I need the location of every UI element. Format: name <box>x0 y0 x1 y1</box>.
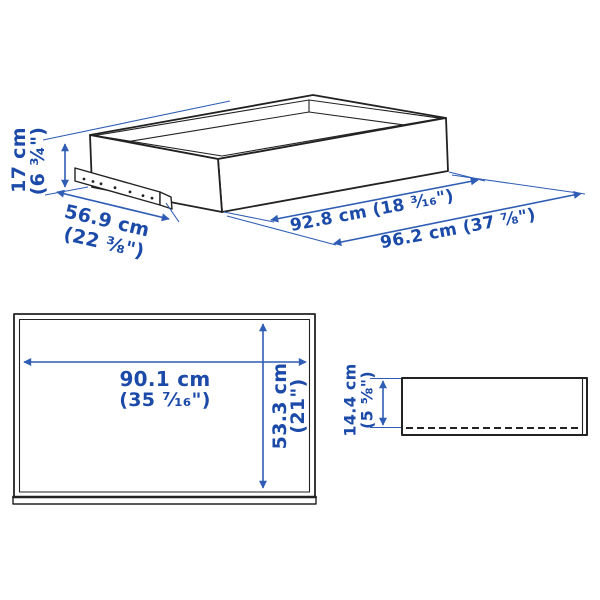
iso-height-in-label: (6 ¾") <box>27 127 49 196</box>
side-view-drawing <box>402 378 587 435</box>
front-view: 90.1 cm (35 ⁷⁄₁₆") 53.3 cm (21") <box>13 314 316 504</box>
side-dim-height: 14.4 cm (5 ⅝") <box>341 363 402 436</box>
side-view: 14.4 cm (5 ⅝") <box>341 363 588 436</box>
drawer-iso-drawing <box>75 95 448 212</box>
front-height-in-label: (21") <box>287 378 309 433</box>
iso-view: 17 cm (6 ¾") 56.9 cm (22 ⅜") 92.8 cm (18… <box>8 95 585 263</box>
front-width-cm-label: 90.1 cm <box>119 367 210 391</box>
side-height-in-label: (5 ⅝") <box>358 371 377 429</box>
diagram-svg: 17 cm (6 ¾") 56.9 cm (22 ⅜") 92.8 cm (18… <box>0 0 600 600</box>
drawer-dimension-diagram: 17 cm (6 ¾") 56.9 cm (22 ⅜") 92.8 cm (18… <box>0 0 600 600</box>
front-width-in-label: (35 ⁷⁄₁₆") <box>119 389 210 411</box>
